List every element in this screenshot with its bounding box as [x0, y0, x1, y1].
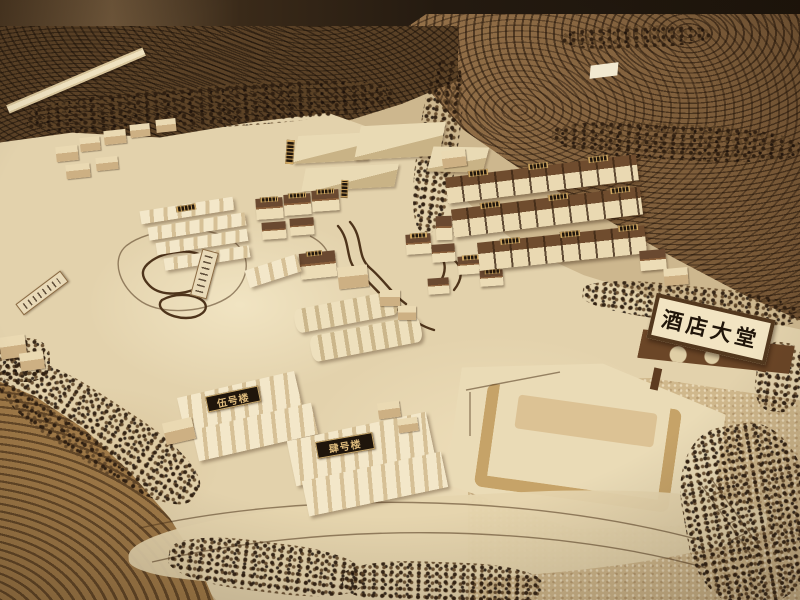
model-building [380, 290, 400, 306]
model-building [377, 401, 401, 420]
model-building [639, 249, 667, 271]
roof-label [285, 140, 295, 164]
model-building [65, 163, 90, 179]
model-building [663, 267, 688, 286]
model-building [289, 217, 314, 236]
model-building [95, 156, 118, 171]
model-building [103, 129, 126, 145]
model-building [129, 123, 150, 138]
model-building [19, 350, 45, 371]
model-building [397, 417, 419, 434]
model-building [436, 216, 453, 241]
model-building [427, 277, 449, 294]
model-building [55, 145, 78, 162]
model-building [155, 118, 176, 133]
roof-label [341, 180, 349, 198]
architectural-model-photo: 伍号楼 肆号楼 酒店大堂 [0, 0, 800, 600]
model-building [337, 264, 369, 289]
model-building [431, 243, 455, 263]
model-building [398, 306, 416, 320]
model-building [441, 149, 467, 169]
model-building [79, 136, 100, 152]
model-building [261, 221, 286, 240]
